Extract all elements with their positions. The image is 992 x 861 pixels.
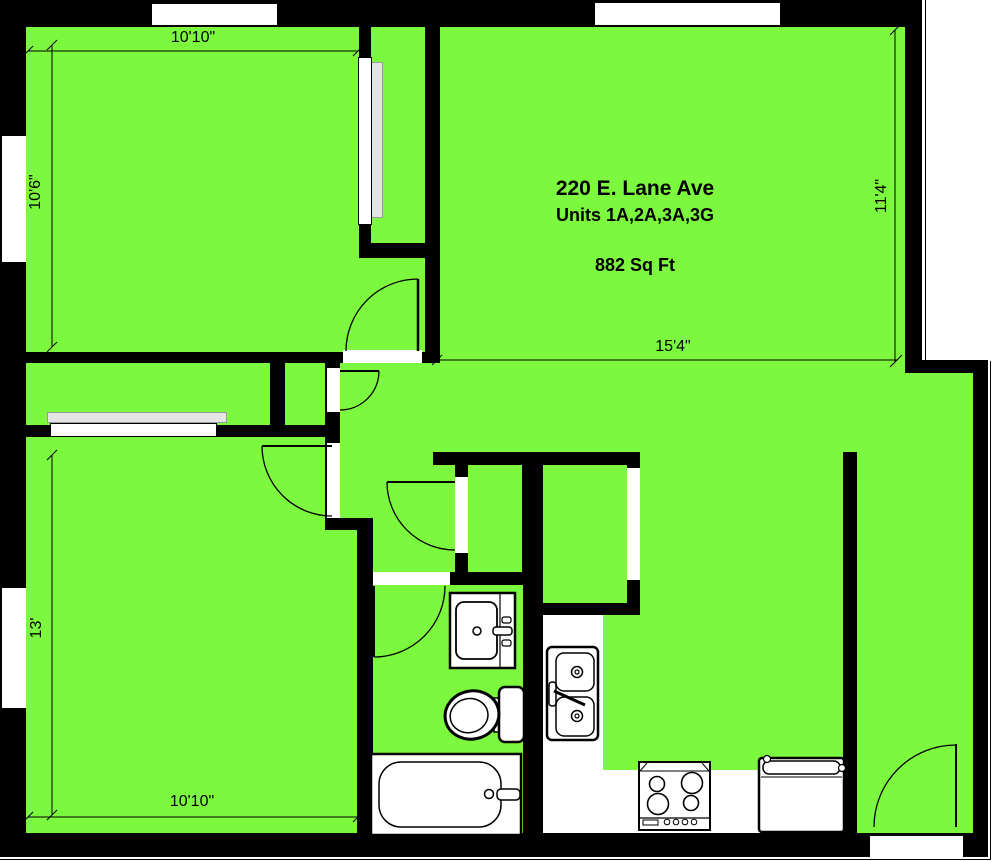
window-left-bedroom1 — [2, 136, 26, 262]
wall-right-lower — [973, 360, 988, 857]
wall-right-upper — [905, 0, 922, 373]
kitchen-counter-left — [540, 615, 603, 833]
dim-label-center: 15'4" — [608, 338, 738, 356]
opening-closetB-door — [627, 468, 640, 580]
opening-utility-door — [327, 368, 340, 412]
dim-label-left-lower: 13' — [28, 578, 48, 678]
bedroom1-closet-slider-front — [358, 57, 372, 225]
wall-b2closet-south-right — [217, 425, 325, 437]
bedroom2-closet-slider-back — [47, 412, 227, 423]
bedroom2-closet-slider-front — [50, 423, 217, 437]
opening-closetA-door — [455, 477, 468, 553]
window-top-bedroom1 — [152, 4, 277, 25]
bedroom1-closet-slider-back — [371, 62, 383, 218]
title-units: Units 1A,2A,3A,3G — [485, 206, 785, 226]
kitchen-counter-bottom — [603, 770, 843, 833]
window-top-living — [595, 3, 780, 25]
wall-bathroom-east — [523, 585, 543, 833]
wall-b2closet-south-left — [26, 425, 50, 437]
dim-label-left-upper: 10'6" — [27, 142, 47, 242]
wall-b1closet-stub-top — [359, 27, 371, 58]
wall-closetB-bottom — [543, 603, 640, 615]
wall-bedroom1-east — [425, 0, 440, 363]
wall-vestibule-jog — [325, 518, 373, 530]
wall-bottom — [0, 833, 988, 857]
opening-bedroom2-door — [327, 443, 340, 518]
outline-bottom — [0, 859, 991, 860]
title-area: 882 Sq Ft — [485, 256, 785, 276]
dim-label-right: 11'4" — [873, 146, 893, 246]
window-left-bedroom2 — [2, 588, 26, 708]
dim-label-bottom: 10'10" — [127, 793, 257, 811]
wall-left — [0, 0, 26, 857]
wall-closetA-east — [522, 465, 543, 585]
wall-b1closet-bottom — [359, 243, 440, 258]
dim-label-top: 10'10" — [128, 29, 258, 47]
floor-plan: 220 E. Lane Ave Units 1A,2A,3A,3G 882 Sq… — [0, 0, 992, 861]
opening-entry-door — [870, 836, 963, 857]
wall-b2closet-divider — [270, 363, 285, 425]
opening-bedroom1-door — [343, 350, 422, 363]
title-address: 220 E. Lane Ave — [485, 177, 785, 200]
outline-right-lower — [990, 361, 991, 859]
wall-top — [0, 0, 922, 27]
wall-hall-top — [433, 452, 640, 465]
outline-right-upper — [925, 0, 926, 361]
wall-kitchen-divider — [843, 452, 857, 833]
opening-bathroom-door — [373, 572, 450, 585]
